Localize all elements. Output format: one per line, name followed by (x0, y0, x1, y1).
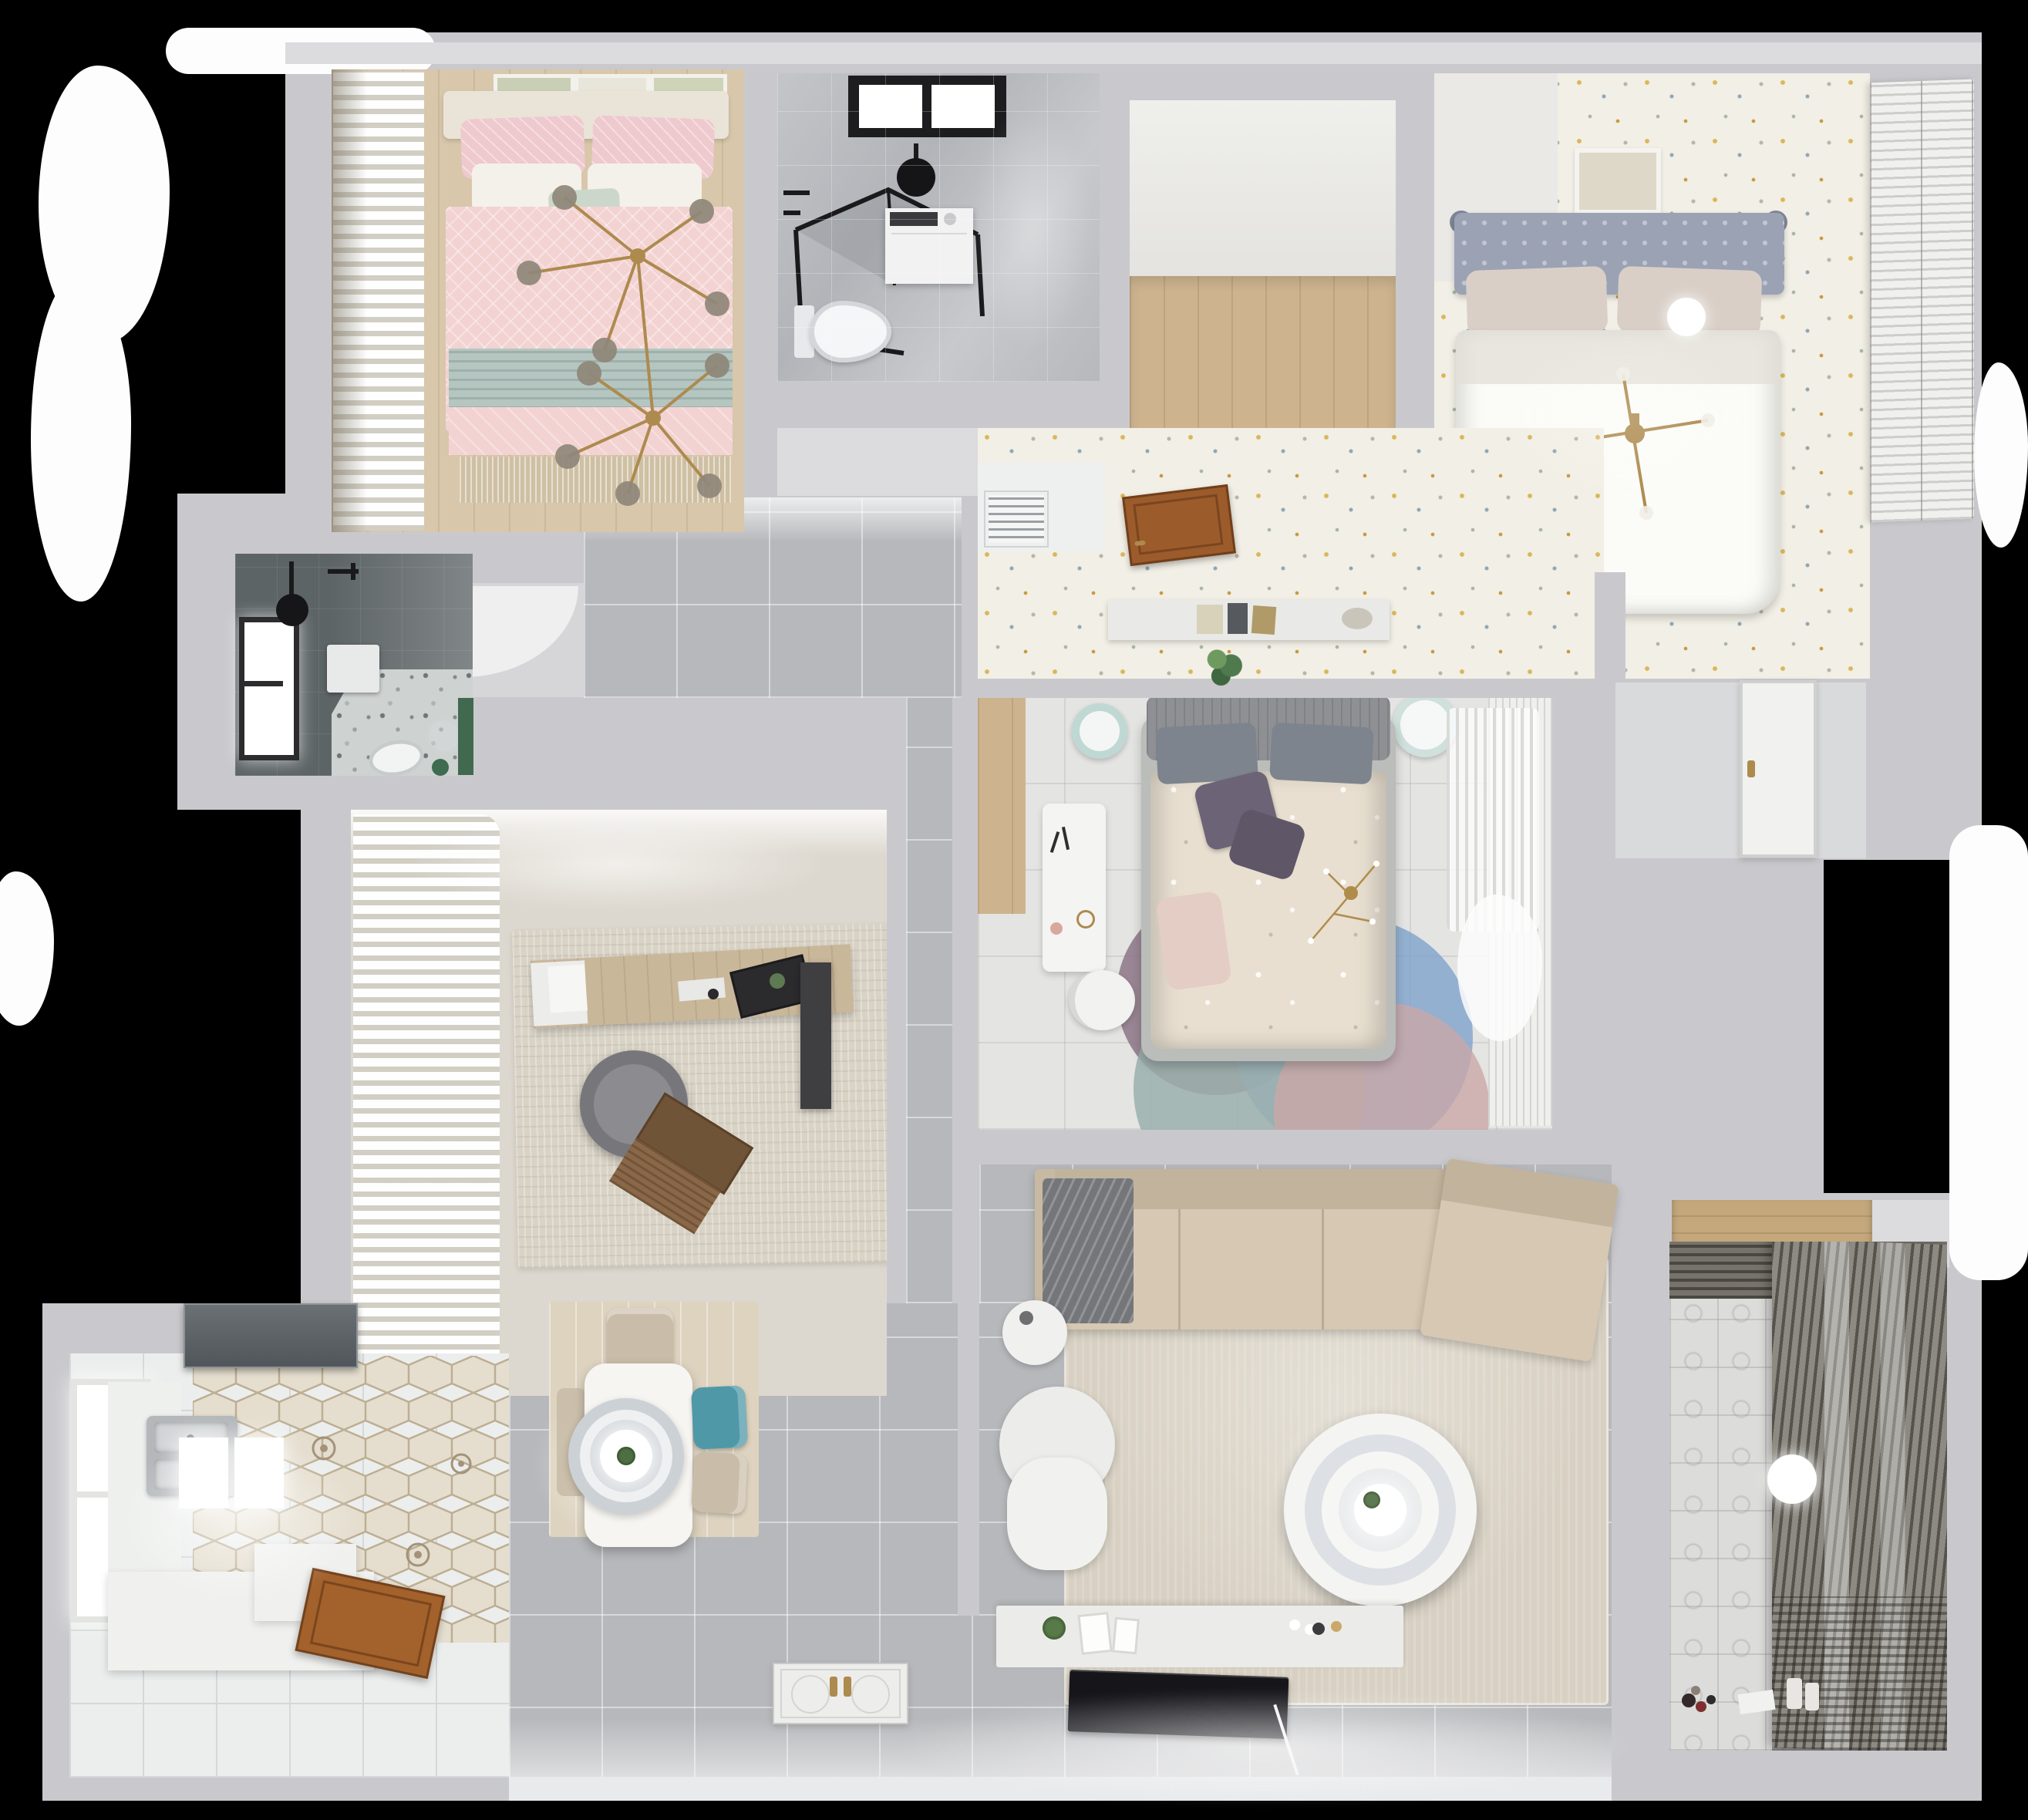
shutter-wardrobe (1870, 79, 1974, 523)
side-table-item (1019, 1311, 1033, 1325)
cabinet (327, 645, 379, 693)
blinds-bottom (1772, 1596, 1947, 1751)
round-mirror (426, 717, 463, 754)
shower-head (276, 594, 308, 626)
background-shape (0, 871, 54, 1026)
plant (432, 759, 449, 776)
toy (1696, 1701, 1706, 1712)
photo-frame (1077, 1612, 1112, 1655)
sofa-chaise (1420, 1158, 1619, 1362)
door-engraving-arc (791, 1675, 830, 1714)
lit-counter (234, 1437, 284, 1508)
door-engraving-arc (851, 1675, 890, 1714)
candle (1289, 1619, 1300, 1630)
washer-panel (890, 212, 938, 226)
book (1228, 603, 1248, 634)
background-shape (31, 278, 131, 602)
room-bedroom-center (978, 698, 1552, 1130)
open-wood-door (1122, 484, 1236, 566)
side-table (1002, 1300, 1067, 1365)
toilet (794, 301, 894, 364)
washing-machine (885, 208, 973, 284)
curtains (353, 814, 500, 1391)
floor-plan-render (0, 0, 2028, 1820)
table-plant (1363, 1491, 1380, 1508)
wall-highlight (285, 42, 1982, 64)
window-mullion (244, 681, 283, 686)
washer-knob (944, 213, 956, 225)
window (239, 617, 299, 760)
desk-chair (1069, 970, 1135, 1030)
pen (1062, 827, 1070, 850)
window-glass (931, 85, 995, 128)
plant-strip (458, 698, 473, 775)
pillow-gray (1269, 723, 1374, 785)
toilet-bowl (810, 301, 891, 362)
desk (1043, 804, 1106, 972)
range-hood (184, 1303, 358, 1368)
wall-segment (1595, 572, 1625, 682)
table-plant (617, 1447, 635, 1465)
key-board (678, 977, 726, 1001)
washer-line (891, 233, 967, 234)
door-panel-line (1133, 494, 1223, 555)
flat-tv (1068, 1670, 1289, 1739)
shower-valve (351, 563, 355, 580)
wall-art (1575, 148, 1661, 214)
nook-wall (1130, 100, 1396, 276)
bowl (1342, 608, 1373, 629)
throw-blanket (1043, 1178, 1134, 1323)
canister (1787, 1678, 1802, 1709)
papers (547, 964, 588, 1013)
toy (1691, 1686, 1700, 1695)
window-glass (859, 85, 922, 128)
room-hallway-upper (978, 428, 1604, 679)
gold-cup (1076, 910, 1095, 929)
background-shape (1949, 825, 2028, 1280)
wall-dining-living (958, 1161, 979, 1616)
room-bathroom-dark (235, 554, 473, 776)
pen (1050, 831, 1059, 853)
toy (1682, 1694, 1696, 1707)
door-handle (830, 1677, 837, 1697)
pillow-blush (1155, 891, 1232, 992)
canister (1805, 1683, 1819, 1710)
stool-top (1080, 711, 1120, 751)
book (1251, 605, 1276, 635)
background-shape (1974, 362, 2028, 548)
door-panel-line (310, 1580, 432, 1667)
coffee-table-center (1354, 1484, 1406, 1536)
room-kitchen (69, 1353, 509, 1778)
chair-beige-top (607, 1308, 673, 1367)
gold-sprig (1303, 848, 1388, 949)
chair-teal (691, 1385, 748, 1450)
ceiling-light (1667, 298, 1706, 336)
photo-frame (1112, 1617, 1140, 1655)
sofa-seam (1178, 1209, 1181, 1330)
toy (1706, 1695, 1716, 1704)
curtain-rod-shadow (332, 69, 367, 532)
console-plant (1043, 1616, 1066, 1640)
paper (1737, 1690, 1775, 1714)
front-door (773, 1663, 908, 1724)
white-door (1740, 680, 1817, 858)
room-balcony (1669, 1242, 1947, 1751)
sofa-seam (1322, 1209, 1324, 1330)
lit-counter (179, 1437, 228, 1508)
desk-plant (770, 973, 785, 989)
armchair-seat (1007, 1458, 1107, 1570)
toilet-cistern (794, 305, 814, 358)
stool-top (1400, 700, 1450, 750)
bookcase (800, 962, 831, 1109)
shower-enclosure (779, 139, 995, 355)
plant (1203, 645, 1243, 686)
window (848, 76, 1006, 137)
pillow (1466, 266, 1609, 337)
stool-left (1072, 703, 1127, 759)
ceiling-light (1767, 1454, 1817, 1504)
room-bedroom-pink (332, 69, 744, 532)
mouse (708, 989, 719, 999)
pink-item (1050, 922, 1063, 935)
room-bathroom-main (777, 73, 1100, 382)
light-pool (970, 104, 1093, 351)
chair-beige-bottom (691, 1451, 748, 1515)
door-handle (1747, 760, 1755, 777)
gold-item (1331, 1621, 1342, 1632)
ac-vent (984, 490, 1049, 548)
entry-floor-edge (509, 1777, 1612, 1801)
book (1197, 605, 1223, 634)
door-handle (844, 1677, 851, 1697)
corridor-vertical (906, 698, 952, 1303)
branch-chandelier (472, 163, 743, 512)
wood-floor-strip (978, 698, 1026, 914)
shower-stem (289, 561, 294, 597)
tv-console (996, 1606, 1403, 1667)
dark-vase (1312, 1623, 1325, 1635)
